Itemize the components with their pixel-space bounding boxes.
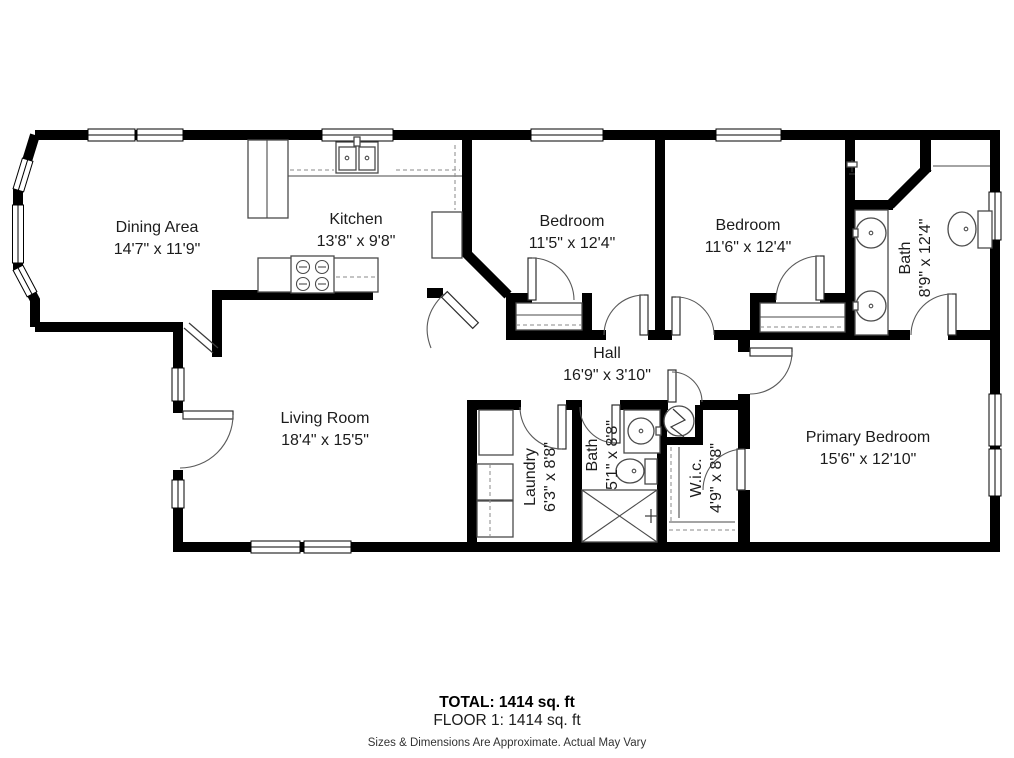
window-bedroom1 xyxy=(531,129,603,141)
room-label-kitchen-name: Kitchen xyxy=(329,211,382,228)
room-label-bath1: Bath 8'9" x 12'4" xyxy=(897,219,934,298)
room-label-wic-name: W.i.c. xyxy=(688,458,705,497)
room-label-kitchen-dims: 13'8" x 9'8" xyxy=(317,233,396,250)
room-label-bath1-name: Bath xyxy=(897,242,914,275)
closet-interior-2 xyxy=(760,303,845,332)
room-label-bedroom1-dims: 11'5" x 12'4" xyxy=(529,235,616,252)
window-primary-2 xyxy=(989,449,1001,496)
window-bedroom2 xyxy=(716,129,781,141)
mechanical-fixtures xyxy=(664,406,694,437)
room-label-laundry-name: Laundry xyxy=(522,448,539,506)
room-label-laundry-dims: 6'3" x 8'8" xyxy=(542,442,559,512)
laundry-fixtures xyxy=(477,410,513,537)
bedroom1-door xyxy=(604,295,648,335)
laundry-cabinet xyxy=(479,410,513,455)
vanity-sink xyxy=(624,410,661,453)
kitchen-hall-door xyxy=(427,292,478,348)
bedroom2-door xyxy=(672,297,714,335)
room-label-wic: W.i.c. 4'9" x 8'8" xyxy=(688,443,725,513)
room-label-bedroom2-dims: 11'6" x 12'4" xyxy=(705,239,792,256)
room-label-bath2-dims: 5'1" x 8'8" xyxy=(604,420,621,490)
room-label-primary-dims: 15'6" x 12'10" xyxy=(820,451,917,468)
window-dining-1 xyxy=(88,129,135,141)
bath1-door xyxy=(911,294,956,335)
room-label-hall-dims: 16'9" x 3'10" xyxy=(563,367,651,384)
floor-area-text: FLOOR 1: 1414 sq. ft xyxy=(433,712,581,729)
room-label-bath1-dims: 8'9" x 12'4" xyxy=(917,219,934,298)
stove-icon xyxy=(291,256,334,293)
disclaimer-text: Sizes & Dimensions Are Approximate. Actu… xyxy=(368,737,647,749)
total-area-text: TOTAL: 1414 sq. ft xyxy=(439,694,575,711)
toilet-icon xyxy=(616,459,657,484)
window-living-1 xyxy=(251,541,300,553)
room-label-primary-name: Primary Bedroom xyxy=(806,429,930,446)
room-label-living-dims: 18'4" x 15'5" xyxy=(281,432,369,449)
room-label-living-name: Living Room xyxy=(281,410,370,427)
window-living-2 xyxy=(304,541,351,553)
window-living-left-2 xyxy=(172,480,184,508)
room-label-bedroom2-name: Bedroom xyxy=(716,217,781,234)
window-primary-1 xyxy=(989,394,1001,446)
bay-window-bottom xyxy=(13,265,37,297)
room-label-bath2: Bath 5'1" x 8'8" xyxy=(584,420,621,490)
kitchen-sink xyxy=(336,137,378,173)
floor-plan: Dining Area 14'7" x 11'9" Kitchen 13'8" … xyxy=(0,0,1014,758)
shower-icon xyxy=(582,490,658,542)
refrigerator xyxy=(432,212,462,258)
window-living-left-1 xyxy=(172,368,184,401)
closet2-door xyxy=(776,256,824,300)
room-label-bedroom1-name: Bedroom xyxy=(540,213,605,230)
room-label-dining-name: Dining Area xyxy=(116,219,199,236)
closet1-door xyxy=(528,258,574,300)
room-label-bath2-name: Bath xyxy=(584,439,601,472)
double-vanity xyxy=(853,210,888,335)
toilet-icon xyxy=(948,211,992,248)
room-label-laundry: Laundry 6'3" x 8'8" xyxy=(522,442,559,512)
bath2-fixtures xyxy=(582,410,661,542)
bay-window-mid xyxy=(13,205,24,263)
bay-window-top xyxy=(13,158,33,192)
closet-interior-1 xyxy=(516,303,582,330)
primary-door xyxy=(750,348,792,394)
room-label-wic-dims: 4'9" x 8'8" xyxy=(708,443,725,513)
washer-dryer-icon xyxy=(477,464,513,537)
summary-block: TOTAL: 1414 sq. ft FLOOR 1: 1414 sq. ft … xyxy=(368,694,647,749)
window-dining-2 xyxy=(137,129,183,141)
front-door xyxy=(180,411,233,468)
room-label-hall-name: Hall xyxy=(593,345,621,362)
room-label-dining-dims: 14'7" x 11'9" xyxy=(114,241,201,258)
mech-closet-door xyxy=(668,370,702,402)
furnace-icon xyxy=(664,406,694,437)
